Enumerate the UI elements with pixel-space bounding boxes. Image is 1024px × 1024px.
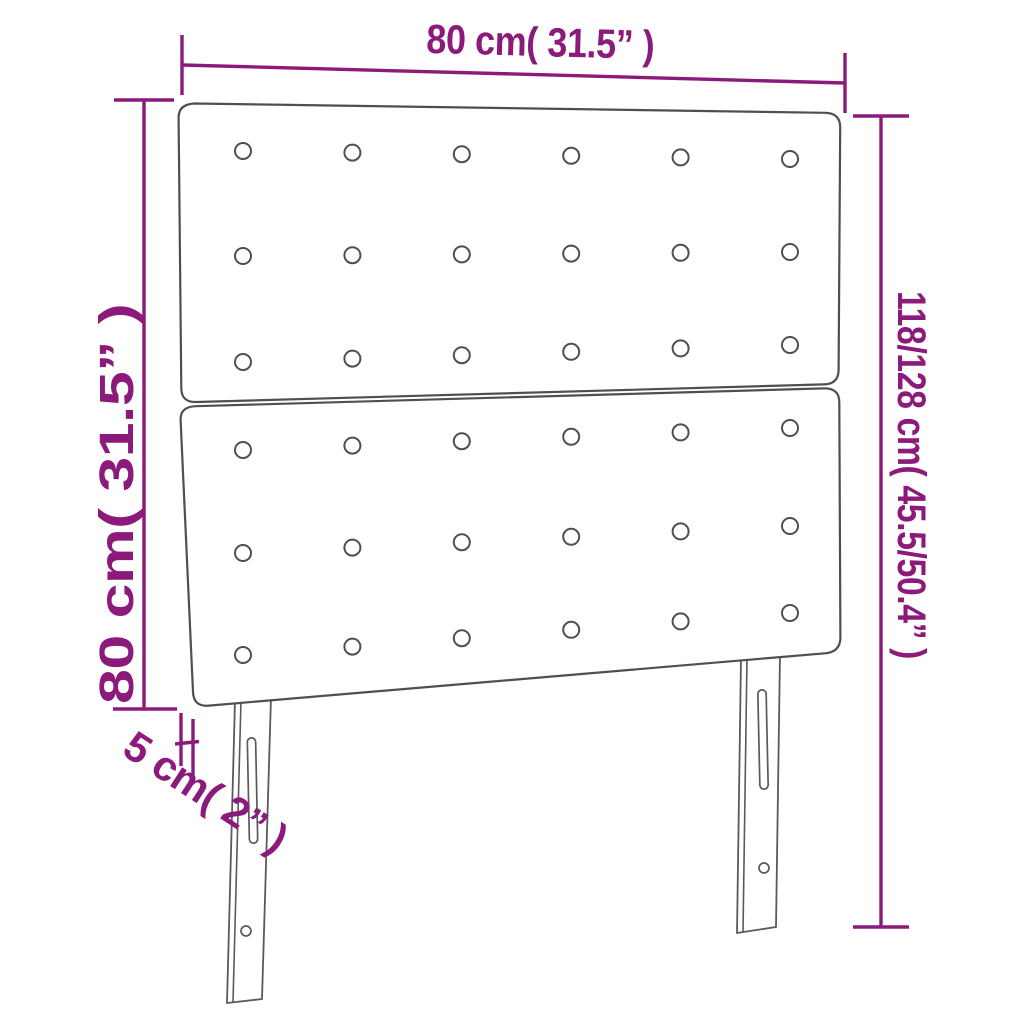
tuft-button (782, 605, 798, 621)
width-dimension-line (182, 65, 845, 83)
right-leg-slot-inner (762, 694, 764, 785)
tuft-button (344, 247, 360, 263)
tuft-button (563, 529, 579, 545)
tuft-button (782, 337, 798, 353)
tuft-button (454, 433, 470, 449)
tuft-button (235, 545, 251, 561)
tuft-button (782, 244, 798, 260)
tuft-button (563, 344, 579, 360)
right-leg (737, 654, 780, 933)
tuft-button (344, 540, 360, 556)
board-height-dimension: 80 cm( 31.5” ) (91, 100, 177, 709)
tuft-button (673, 523, 689, 539)
tuft-button (673, 149, 689, 165)
tuft-button (563, 429, 579, 445)
tuft-button (673, 340, 689, 356)
tuft-button (454, 534, 470, 550)
total-height-dimension: 118/128 cm( 45.5/50.4” ) (853, 116, 933, 927)
tuft-button (563, 148, 579, 164)
tuft-button (563, 622, 579, 638)
tuft-button (782, 151, 798, 167)
tuft-button (454, 630, 470, 646)
width-dimension-label: 80 cm( 31.5” ) (426, 16, 655, 68)
tuft-button (235, 143, 251, 159)
tuft-button (454, 347, 470, 363)
tuft-button (344, 145, 360, 161)
tuft-button (673, 613, 689, 629)
tuft-button (235, 647, 251, 663)
tuft-button (673, 424, 689, 440)
headboard-diagram-canvas: 80 cm( 31.5” ) 118/128 cm( 45.5/50.4” ) … (0, 0, 1024, 1024)
left-leg-screw-hole (241, 926, 251, 936)
tuft-button (344, 639, 360, 655)
tuft-button (563, 246, 579, 262)
dimension-diagram: 80 cm( 31.5” ) 118/128 cm( 45.5/50.4” ) … (0, 0, 1024, 1024)
tuft-button (235, 354, 251, 370)
tuft-button (344, 351, 360, 367)
right-leg-screw-hole (759, 863, 769, 873)
tuft-button (782, 518, 798, 534)
thickness-crossbar (175, 742, 199, 745)
width-dimension: 80 cm( 31.5” ) (182, 16, 845, 113)
headboard-lower-panel (181, 388, 841, 705)
tuft-button (344, 438, 360, 454)
headboard-upper-panel (179, 104, 841, 403)
tuft-button (782, 420, 798, 436)
tuft-button (673, 245, 689, 261)
board-height-dimension-label: 80 cm( 31.5” ) (91, 304, 144, 704)
tuft-button (235, 442, 251, 458)
total-height-dimension-label: 118/128 cm( 45.5/50.4” ) (889, 291, 933, 659)
tuft-button (235, 248, 251, 264)
tuft-button (454, 146, 470, 162)
tuft-button (454, 246, 470, 262)
